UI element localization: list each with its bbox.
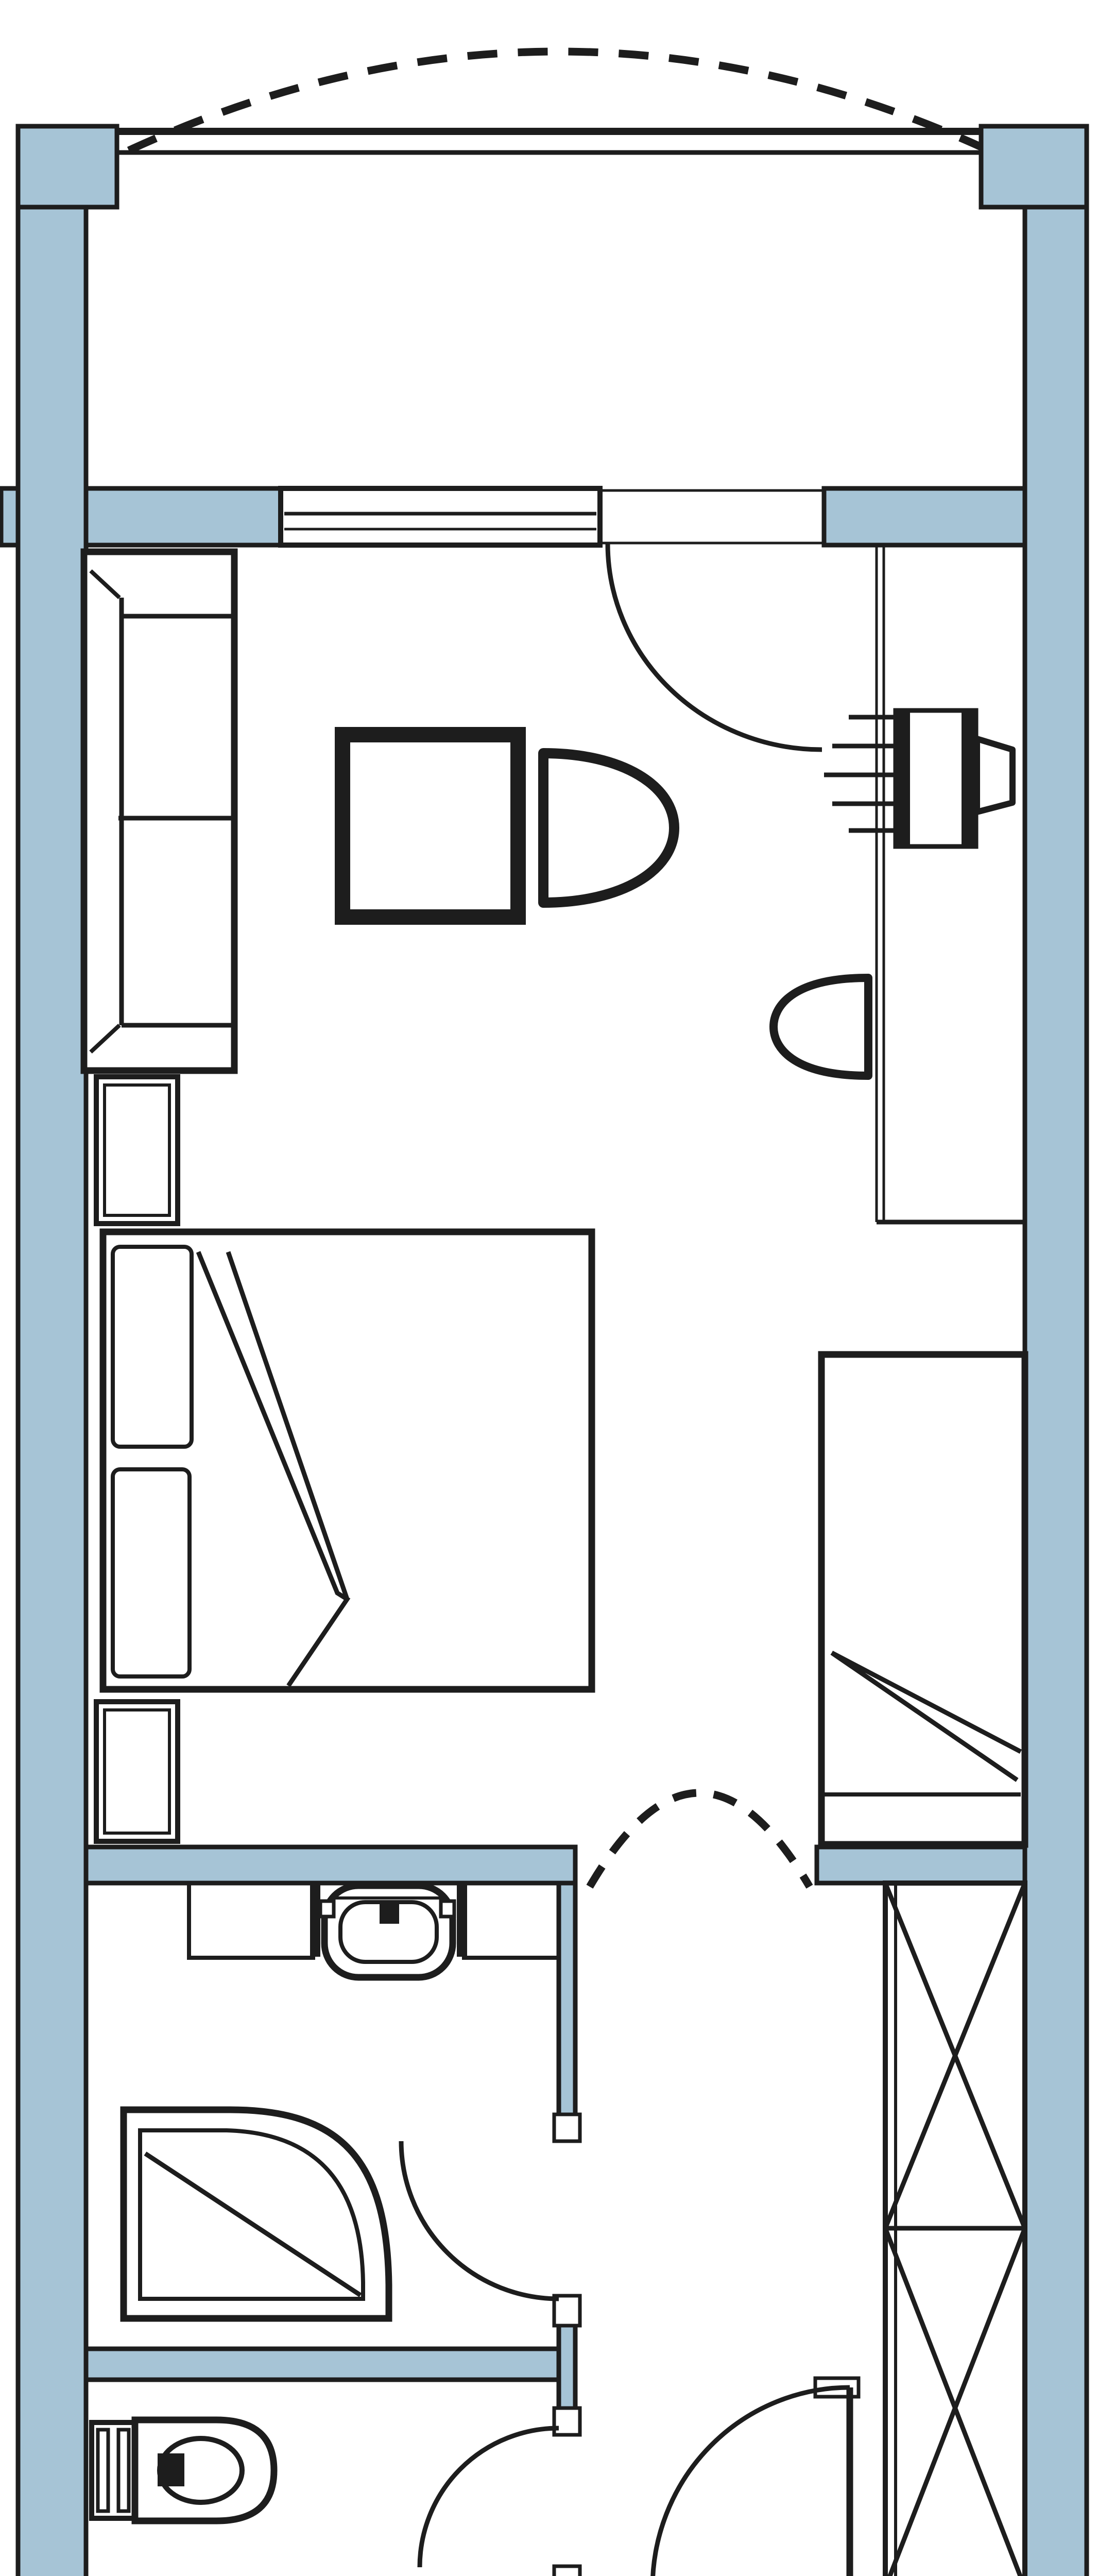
- toilet-icon: [92, 2420, 274, 2521]
- pillow-icon-bottom: [113, 1469, 190, 1676]
- wc-door-jamb-bottom: [554, 2566, 580, 2576]
- right-outer-wall: [1025, 126, 1087, 2576]
- tap-handle-right: [441, 1901, 454, 1917]
- wc-wall: [86, 2349, 559, 2380]
- hall-partition-middle: [559, 2325, 575, 2410]
- nightstand-bottom: [96, 1702, 178, 1841]
- double-bed: [103, 1232, 592, 1689]
- balcony-wall-left-segment: [86, 488, 281, 545]
- single-bed-icon: [821, 1354, 1025, 1844]
- toilet-flush-detail: [158, 2453, 184, 2486]
- left-parapet-corner: [18, 126, 117, 207]
- wardrobe: [885, 1883, 1025, 2576]
- bathroom-wall-right-segment: [817, 1847, 1025, 1883]
- left-outer-wall: [18, 126, 86, 2576]
- faucet-icon: [380, 1902, 399, 1924]
- coffee-table: [342, 735, 518, 917]
- floor-plan-drawing: [0, 0, 1098, 2576]
- sofa-outline: [84, 552, 234, 1071]
- bathroom-door-jamb-top: [554, 2114, 580, 2141]
- desk-side-left: [896, 710, 910, 846]
- cistern-slot-right: [118, 2430, 129, 2511]
- stool-icon: [977, 739, 1013, 812]
- pillow-icon-top: [113, 1247, 192, 1447]
- hall-partition-upper: [559, 1883, 575, 2116]
- window-frame: [281, 488, 600, 545]
- wc-door-jamb-top: [554, 2408, 580, 2435]
- sofa: [84, 552, 234, 1071]
- nightstand-top: [96, 1077, 178, 1224]
- cistern-slot-left: [98, 2430, 108, 2511]
- nightstand-icon: [96, 1077, 178, 1224]
- left-wall-stub: [1, 488, 18, 545]
- nightstand-icon: [96, 1702, 178, 1841]
- balcony-wall-right-segment: [824, 488, 1025, 545]
- toilet-body: [135, 2420, 274, 2521]
- floor-plan: [0, 0, 1098, 2576]
- right-parapet-corner: [981, 126, 1087, 207]
- washbasin-icon: [315, 1885, 462, 1977]
- coffee-table-icon: [342, 735, 518, 917]
- balcony-window: [281, 488, 600, 545]
- single-bed: [821, 1354, 1025, 1844]
- tap-handle-left: [320, 1901, 334, 1917]
- desk-side-right: [962, 710, 976, 846]
- bathroom-wall-left-segment: [86, 1847, 575, 1883]
